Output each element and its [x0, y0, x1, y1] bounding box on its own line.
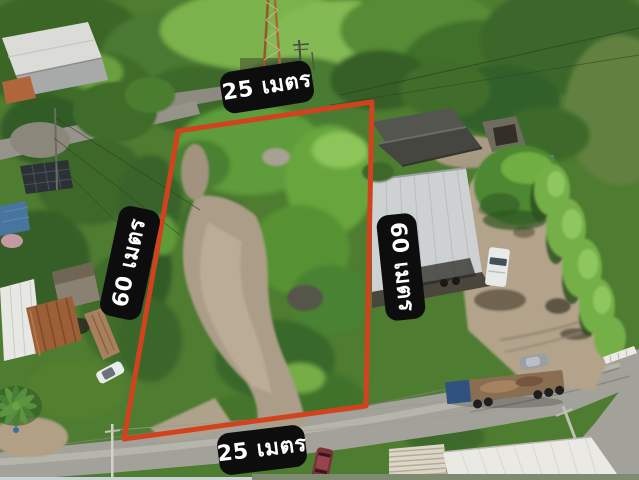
aerial-photo — [0, 0, 639, 480]
blue-tarp — [0, 201, 30, 236]
person — [13, 427, 19, 433]
aerial-photo-viewport: 25 เมตร 60 เมตร 60 เมตร 25 เมตร — [0, 0, 639, 480]
